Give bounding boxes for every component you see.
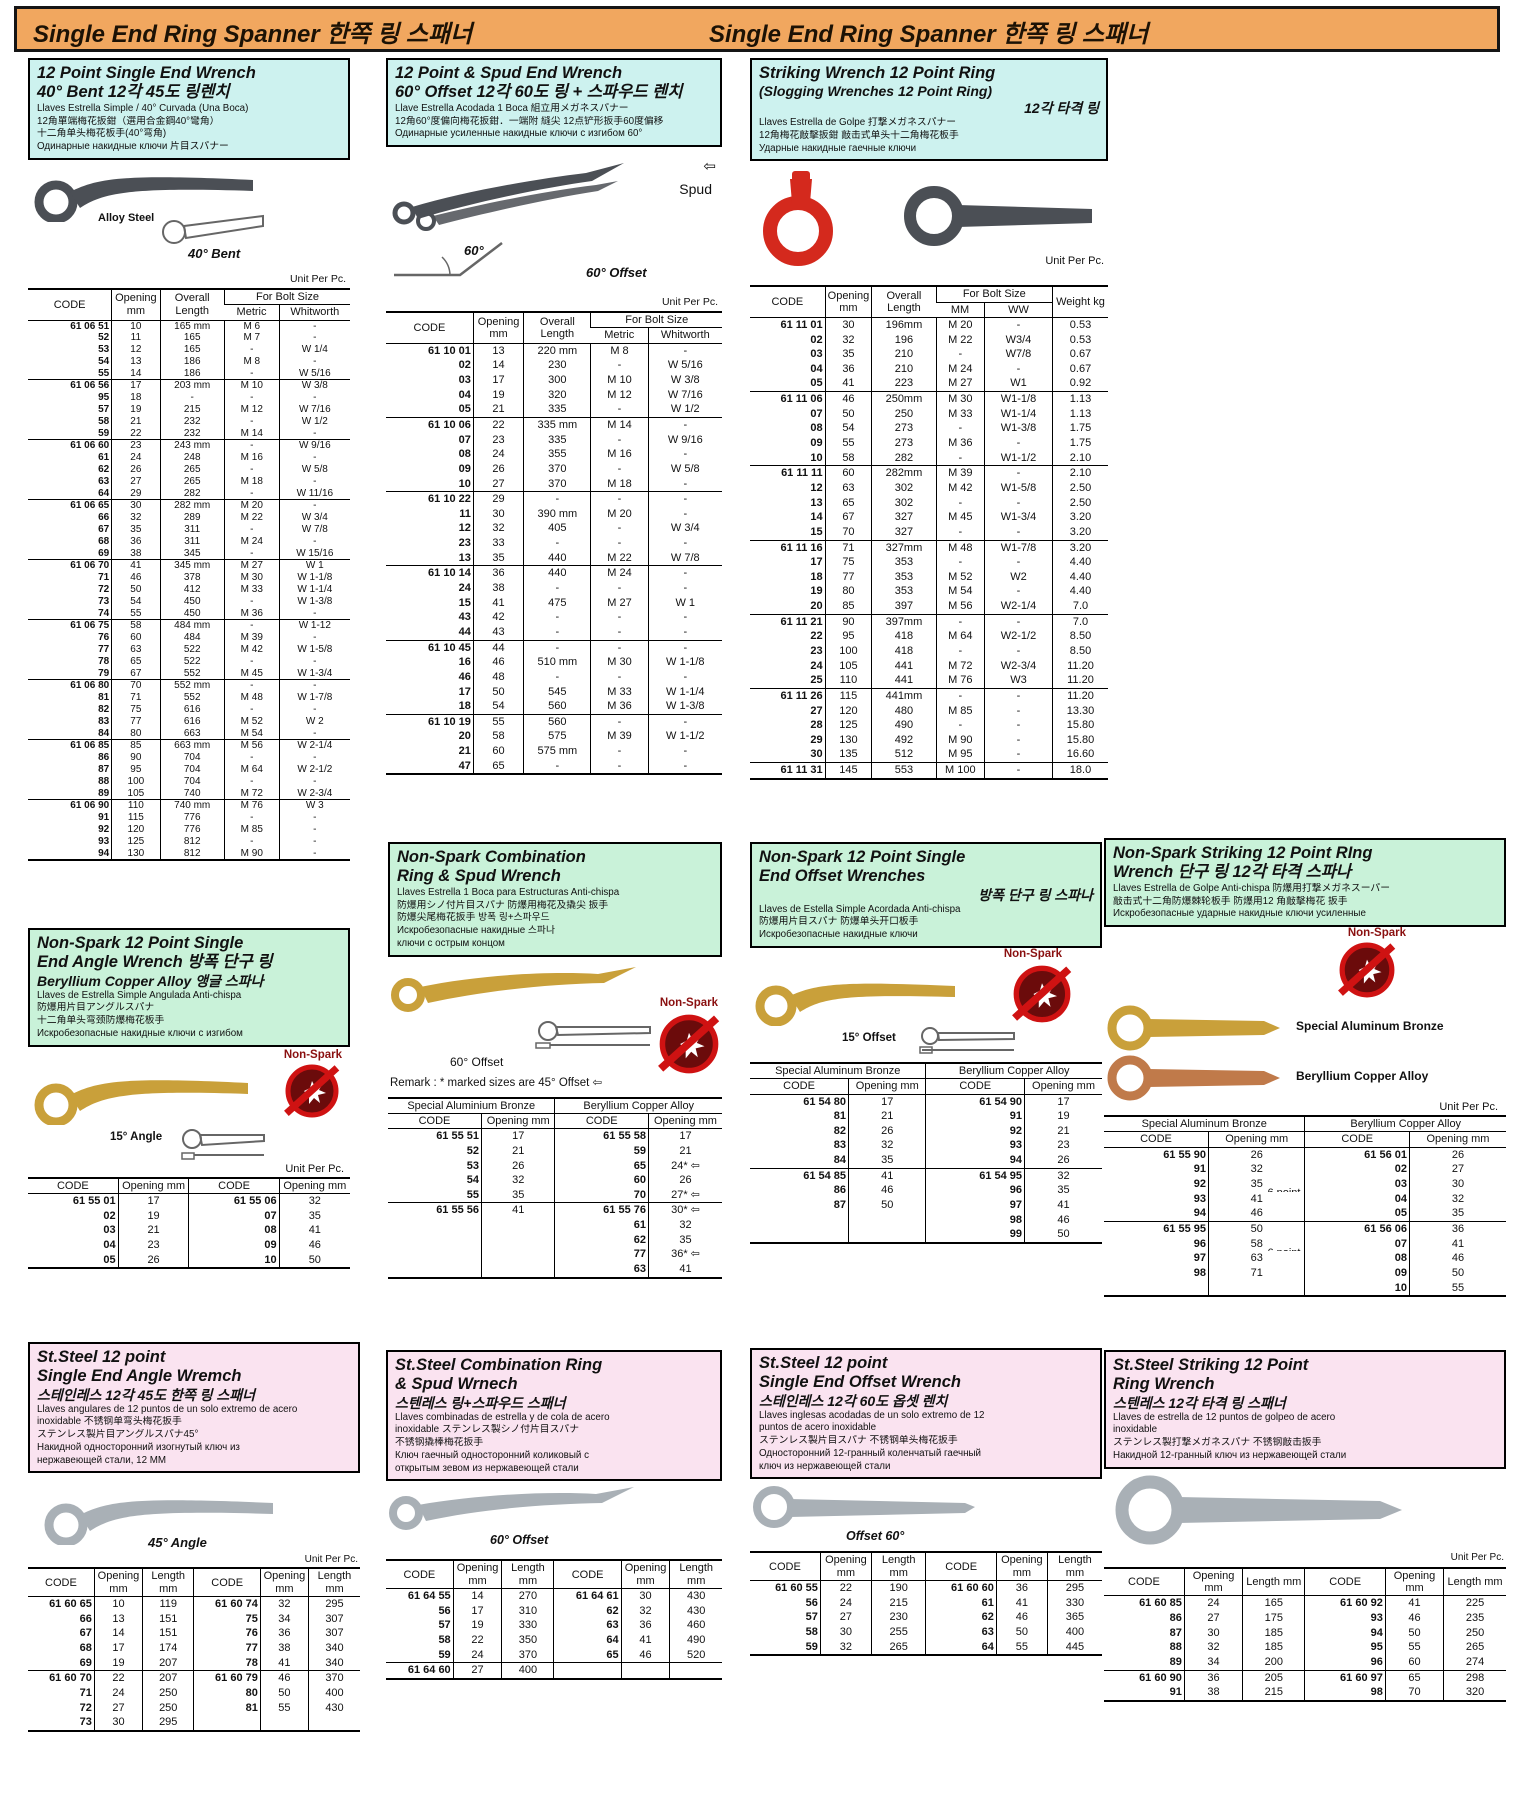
table-row: 30135512M 95-16.60 (750, 747, 1108, 762)
table-cell: 2.50 (1052, 496, 1108, 511)
table-row: 23100418--8.50 (750, 644, 1108, 659)
table-cell: 16.60 (1052, 747, 1108, 762)
table-cell: 61 55 56 (388, 1203, 482, 1218)
steel-spud-wrench-image (386, 1485, 636, 1535)
table-cell: 17 (386, 685, 473, 700)
table-cell: 61 60 79 (194, 1671, 260, 1686)
table-cell: W1 (984, 376, 1052, 391)
table-cell: 23 (473, 433, 523, 448)
table-cell: - (936, 347, 984, 362)
table-cell: 41 (621, 1633, 670, 1648)
table-cell: 32 (820, 1640, 871, 1656)
table-row: 92120776M 85- (28, 824, 350, 836)
bronze-striking-wrench-image (1104, 1005, 1284, 1051)
table-cell: 13 (750, 496, 825, 511)
wrench-outline-icon (918, 1026, 1018, 1058)
table-cell: 265 (871, 1640, 926, 1656)
section-descriptions: Llaves Estrella 1 Boca para Estructuras … (397, 887, 713, 951)
table-cell (670, 1663, 722, 1679)
table-cell: W3 (984, 673, 1052, 688)
table-cell: 92 (28, 824, 112, 836)
table-row: 0824355M 16- (386, 447, 722, 462)
section-title: St.Steel Striking 12 Point (1113, 1356, 1497, 1375)
table-row: 89342009660274 (1104, 1655, 1506, 1670)
table-row: 61 11 31145553M 100-18.0 (750, 763, 1108, 779)
table-cell: 145 (825, 763, 872, 779)
table-cell: 335 mm (524, 417, 591, 432)
table-row: 88321859555265 (1104, 1640, 1506, 1655)
table-cell: W 2-3/4 (279, 788, 350, 800)
section-descriptions: Llaves de Estella Simple Acordada Anti-c… (759, 904, 1093, 942)
table-cell: 55 (1385, 1640, 1443, 1655)
table-header-cell: Opening mm (825, 286, 872, 317)
table-cell: 36 (1184, 1670, 1242, 1685)
table-cell (194, 1715, 260, 1731)
table-cell: 100 (112, 776, 160, 788)
table-cell: 55 (28, 368, 112, 380)
table-header-cell: Special Aluminum Bronze (750, 1063, 926, 1079)
section-title-3: Beryllium Copper Alloy 앵글 스파나 (37, 973, 341, 990)
table-row: 6132 (388, 1218, 722, 1233)
table-cell: W 9/16 (648, 433, 722, 448)
table-cell: 32 (1184, 1640, 1242, 1655)
table-cell: 08 (386, 447, 473, 462)
table-cell: 232 (160, 428, 224, 440)
table-cell: 400 (308, 1686, 360, 1701)
table-cell: 345 (160, 548, 224, 560)
non-spark-label: Non-Spark (1348, 927, 1406, 939)
table-cell: 70 (112, 680, 160, 692)
table-cell: 61 11 31 (750, 763, 825, 779)
table-cell: W 3/4 (279, 512, 350, 524)
table-cell: 61 11 26 (750, 688, 825, 703)
section-descriptions: Llave Estrella Acodada 1 Boca 組立用メガネスパナー… (395, 103, 713, 141)
non-spark-logo-icon (284, 1063, 340, 1119)
table-cell: 43 (473, 625, 523, 640)
table-cell: 05 (386, 402, 473, 417)
table-cell: 34 (260, 1612, 308, 1627)
spud-wrench-image (386, 161, 636, 231)
table-header-cell: For Bolt Size (591, 312, 722, 328)
non-spark-label: Non-Spark (284, 1049, 342, 1061)
table-header-cell: Beryllium Copper Alloy (1305, 1116, 1506, 1132)
table-cell: 265 (1444, 1640, 1506, 1655)
table-cell: 19 (473, 388, 523, 403)
table-cell: 165 (1243, 1596, 1305, 1611)
table-cell: 46 (996, 1610, 1047, 1625)
section-header-box: 12 Point Single End Wrench 40° Bent 12각 … (28, 58, 350, 160)
table-row: 91115776-- (28, 812, 350, 824)
table-row: 97630846 (1104, 1251, 1506, 1266)
table-cell: 26 (849, 1124, 926, 1139)
non-spark-logo-icon (1012, 964, 1072, 1024)
table-row: 5821232-W 1/2 (28, 416, 350, 428)
table-cell: M 33 (224, 584, 279, 596)
table-row: 8795704M 64W 2-1/2 (28, 764, 350, 776)
table-cell: 10 (1305, 1281, 1410, 1297)
table-cell: 35 (1025, 1183, 1102, 1198)
section-title: Non-Spark Combination (397, 848, 713, 867)
table-cell: - (936, 451, 984, 466)
table-cell: 52 (388, 1144, 482, 1159)
table-cell: 80 (194, 1686, 260, 1701)
table-cell: - (224, 416, 279, 428)
table-row: 7330295 (28, 1715, 360, 1731)
table-cell: 18.0 (1052, 763, 1108, 779)
table-header-cell: CODE (386, 1560, 453, 1588)
table-cell: M 27 (936, 376, 984, 391)
table-cell: - (279, 320, 350, 332)
table-cell: 41 (482, 1203, 555, 1218)
table-cell: M 48 (224, 692, 279, 704)
table-cell: 26 (1025, 1153, 1102, 1168)
table-cell: - (648, 714, 722, 729)
table-cell: 0.53 (1052, 317, 1108, 332)
table-cell: 93 (1104, 1192, 1209, 1207)
table-row: 03210841 (28, 1223, 350, 1238)
table-cell: - (224, 620, 279, 632)
table-cell: 46 (386, 670, 473, 685)
table-cell: 663 mm (160, 740, 224, 752)
table-row: 0232196M 22W3/40.53 (750, 333, 1108, 348)
table-cell: 88 (28, 776, 112, 788)
table-cell: W 1-5/8 (279, 644, 350, 656)
table-cell: M 30 (936, 392, 984, 407)
table-cell: M 90 (224, 848, 279, 861)
table-cell: M 85 (224, 824, 279, 836)
table-row: 91382159870320 (1104, 1685, 1506, 1701)
table-row: 55357027* ⇦ (388, 1188, 722, 1203)
table-cell: W 3/8 (648, 373, 722, 388)
table-cell: W 1-7/8 (279, 692, 350, 704)
table-cell: 35 (473, 551, 523, 566)
table-cell: - (224, 776, 279, 788)
non-spark-logo-icon (1338, 941, 1396, 999)
section-ststeel-offset-wrench: St.Steel 12 point Single End Offset Wren… (750, 1348, 1102, 1656)
table-cell: 32 (649, 1218, 723, 1233)
table-cell: M 14 (224, 428, 279, 440)
table-cell: - (984, 436, 1052, 451)
non-spark-label: Non-Spark (660, 997, 718, 1009)
table-cell: 30 (820, 1625, 871, 1640)
table-row: 54326026 (388, 1173, 722, 1188)
table-cell: 41 (260, 1656, 308, 1671)
table-cell: 61 11 06 (750, 392, 825, 407)
table-cell: 29 (473, 492, 523, 507)
table-cell: 95 (28, 392, 112, 404)
table-header-cell: Opening mm (820, 1552, 871, 1580)
table-cell: - (279, 656, 350, 668)
table-cell: M 33 (936, 407, 984, 422)
section-title: St.Steel Combination Ring (395, 1356, 713, 1375)
table-cell: M 72 (936, 659, 984, 674)
table-header-cell: For Bolt Size (936, 286, 1052, 302)
table-cell: 46 (621, 1648, 670, 1663)
table-cell: 185 (1243, 1626, 1305, 1641)
table-cell: M 10 (591, 373, 648, 388)
table-cell: 250 (1444, 1626, 1506, 1641)
table-cell: 70 (1385, 1685, 1443, 1701)
section-title-alt: (Slogging Wrenches 12 Point Ring) (759, 83, 1099, 100)
table-cell: 215 (160, 404, 224, 416)
table-cell: - (279, 848, 350, 861)
product-image-area: Non-Spark 15° Offset (750, 948, 1102, 1060)
section-striking-wrench: Striking Wrench 12 Point Ring (Slogging … (750, 58, 1108, 780)
section-descriptions: Llaves de estrella de 12 puntos de golpe… (1113, 1412, 1497, 1463)
table-header-cell: Opening mm (473, 312, 523, 343)
table-cell: 32 (1410, 1192, 1507, 1207)
table-row: 9846 (750, 1213, 1102, 1228)
table-cell: M 24 (936, 362, 984, 377)
table-cell: 4.40 (1052, 584, 1108, 599)
table-cell: 61 64 55 (386, 1589, 453, 1604)
table-row: 61 55 011761 55 0632 (28, 1193, 350, 1208)
table-header-cell: MM (936, 302, 984, 317)
table-row: 59322656455445 (750, 1640, 1102, 1656)
table-header-cell: Opening mm (849, 1079, 926, 1094)
table-cell: 61 60 92 (1305, 1596, 1385, 1611)
table-cell (482, 1262, 555, 1278)
table-cell: - (984, 733, 1052, 748)
table-row: 0750250M 33W1-1/41.13 (750, 407, 1108, 422)
nonspark-offset-wrench-table: Special Aluminum BronzeBeryllium Copper … (750, 1062, 1102, 1244)
table-cell: M 18 (224, 476, 279, 488)
table-cell: 32 (849, 1138, 926, 1153)
section-descriptions: Llaves Estrella Simple / 40° Curvada (Un… (37, 103, 341, 154)
table-cell: 3.20 (1052, 510, 1108, 525)
table-header-cell: Beryllium Copper Alloy (926, 1063, 1102, 1079)
table-cell: 17 (750, 555, 825, 570)
table-cell: - (984, 614, 1052, 629)
table-cell: M 7 (224, 332, 279, 344)
table-cell: 61 06 70 (28, 560, 112, 572)
table-header-row: CODEOpening mmCODEOpening mm (1104, 1132, 1506, 1147)
table-header-cell: Length mm (871, 1552, 926, 1580)
table-cell: 10 (386, 477, 473, 492)
table-cell: - (279, 536, 350, 548)
table-cell: - (648, 581, 722, 596)
table-cell: M 22 (936, 333, 984, 348)
table-cell: 84 (28, 728, 112, 740)
table-cell: W 5/8 (279, 464, 350, 476)
unit-per-pc-label: Unit Per Pc. (1045, 255, 1104, 267)
table-header-row: CODEOpening mmCODEOpening mm (750, 1079, 1102, 1094)
table-cell: M 27 (224, 560, 279, 572)
table-cell: - (224, 836, 279, 848)
table-cell: 19 (750, 584, 825, 599)
table-cell: 82 (750, 1124, 849, 1139)
table-cell: - (224, 752, 279, 764)
table-cell: - (936, 496, 984, 511)
table-cell: 65 (473, 759, 523, 775)
table-row: 7736* ⇦ (388, 1247, 722, 1262)
angle-45-label: 45° Angle (148, 1535, 207, 1550)
table-cell: 44 (386, 625, 473, 640)
table-cell: 61 60 90 (1104, 1670, 1184, 1685)
table-cell: 08 (1305, 1251, 1410, 1266)
table-cell: 58 (386, 1633, 453, 1648)
table-cell: 91 (926, 1109, 1025, 1124)
alloy-steel-label: Alloy Steel (98, 212, 154, 224)
table-cell (308, 1715, 360, 1731)
table-cell: 61 06 80 (28, 680, 112, 692)
table-cell: M 8 (224, 356, 279, 368)
table-row: 04230946 (28, 1238, 350, 1253)
table-header-row: CODEOpening mmLength mmCODEOpening mmLen… (750, 1552, 1102, 1580)
table-cell: 61 10 45 (386, 640, 473, 655)
table-cell: - (524, 536, 591, 551)
table-row: 61 60 852416561 60 9241225 (1104, 1596, 1506, 1611)
table-cell: 33 (473, 536, 523, 551)
table-cell: - (648, 744, 722, 759)
table-cell: 26 (112, 464, 160, 476)
table-row: 1750545M 33W 1-1/4 (386, 685, 722, 700)
section-title-2: & Spud Wrnech (395, 1375, 713, 1394)
table-cell: W 5/16 (279, 368, 350, 380)
table-row: 5413186M 8- (28, 356, 350, 368)
table-cell: - (936, 688, 984, 703)
table-row: 1646510 mmM 30W 1-1/8 (386, 655, 722, 670)
table-header-row: CODEOpening mmOverall LengthFor Bolt Siz… (750, 286, 1108, 302)
table-header-cell: CODE (28, 289, 112, 320)
table-cell: 38 (112, 548, 160, 560)
table-row: 87301859450250 (1104, 1626, 1506, 1641)
table-cell (388, 1262, 482, 1278)
table-cell: 70 (555, 1188, 649, 1203)
table-cell: 46 (1410, 1251, 1507, 1266)
table-cell: 740 (160, 788, 224, 800)
table-cell: 46 (849, 1183, 926, 1198)
table-cell: 27 (1184, 1611, 1242, 1626)
section-title-2: End Offset Wrenches (759, 867, 1093, 886)
table-cell: - (648, 566, 722, 581)
table-row: 58223506441490 (386, 1633, 722, 1648)
table-cell: 90 (112, 752, 160, 764)
table-header-cell: Opening mm (996, 1552, 1047, 1580)
table-cell: 17 (1025, 1094, 1102, 1109)
table-cell: 35 (112, 524, 160, 536)
table-cell: - (524, 640, 591, 655)
table-cell: 22 (750, 629, 825, 644)
table-cell: 46 (825, 392, 872, 407)
table-header-cell: CODE (1305, 1132, 1410, 1147)
table-row: 1775353--4.40 (750, 555, 1108, 570)
table-cell: 295 (308, 1597, 360, 1612)
table-header-cell: Opening mm (621, 1560, 670, 1588)
table-row: 86469635 (750, 1183, 1102, 1198)
table-cell: 243 mm (160, 440, 224, 452)
table-row: 9518--- (28, 392, 350, 404)
table-cell: 61 06 56 (28, 380, 112, 392)
table-cell: 54 (28, 356, 112, 368)
table-cell: 12 (112, 344, 160, 356)
table-cell: 54 (388, 1173, 482, 1188)
unit-per-pc-label: Unit Per Pc. (386, 295, 722, 309)
table-row: 61 11 0130196mmM 20-0.53 (750, 317, 1108, 332)
table-cell: M 48 (936, 540, 984, 555)
table-cell: 60 (825, 466, 872, 481)
table-cell: 46 (1025, 1213, 1102, 1228)
product-image-area: Unit Per Pc. (1104, 1469, 1506, 1565)
table-row: 93410432 (1104, 1192, 1506, 1207)
table-cell: 46 (279, 1238, 350, 1253)
table-row: 7354450-W 1-3/8 (28, 596, 350, 608)
section-nonspark-ring-spud: Non-Spark Combination Ring & Spud Wrench… (388, 842, 722, 1279)
table-cell: 85 (112, 740, 160, 752)
table-cell: 71 (28, 572, 112, 584)
table-cell: 3.20 (1052, 525, 1108, 540)
section-title: St.Steel 12 point (37, 1348, 351, 1367)
table-row: 61 55 511761 55 5817 (388, 1129, 722, 1144)
table-cell: 46 (260, 1671, 308, 1686)
table-cell: W 1-12 (279, 620, 350, 632)
product-image-area: Non-Spark 15° Angle Unit Per Pc. (28, 1047, 350, 1175)
table-cell: 94 (926, 1153, 1025, 1168)
table-header-cell: Length mm (308, 1568, 360, 1596)
table-cell: 356 point (1209, 1177, 1305, 1192)
table-cell: 2.10 (1052, 466, 1108, 481)
table-cell: 36 (825, 362, 872, 377)
non-spark-label: Non-Spark (1004, 948, 1062, 960)
wrench-outline-icon (158, 208, 268, 248)
section-subtitle: 60° Offset 12각 60도 링 + 스파우드 렌치 (395, 83, 713, 102)
table-cell: 61 06 90 (28, 800, 112, 812)
table-cell: W 1-1/8 (648, 655, 722, 670)
table-cell: 165 (160, 332, 224, 344)
table-cell: 75 (825, 555, 872, 570)
table-header-cell: Opening mm (94, 1568, 142, 1596)
gold-offset-wrench-image (750, 966, 960, 1026)
table-cell: 335 (524, 402, 591, 417)
table-cell: 54 (473, 699, 523, 714)
table-cell: - (591, 714, 648, 729)
table-cell: 91 (1104, 1162, 1209, 1177)
table-cell: 30 (825, 317, 872, 332)
table-row: 91320227 (1104, 1162, 1506, 1177)
table-cell: 62 (554, 1604, 621, 1619)
table-header-cell: Special Aluminium Bronze (388, 1098, 555, 1114)
table-cell: 186 (160, 356, 224, 368)
table-cell: 61 60 85 (1104, 1596, 1184, 1611)
table-row: 0854273-W1-3/81.75 (750, 421, 1108, 436)
table-row: 6429282-W 11/16 (28, 488, 350, 500)
table-cell: 19 (453, 1618, 502, 1633)
table-cell: 55 (260, 1701, 308, 1716)
table-cell: 11.20 (1052, 659, 1108, 674)
table-cell: 370 (502, 1648, 554, 1663)
table-cell: 265 (160, 476, 224, 488)
table-cell: 230 (524, 358, 591, 373)
table-cell (849, 1213, 926, 1228)
table-cell: 46 (112, 572, 160, 584)
table-header-cell: CODE (926, 1079, 1025, 1094)
table-cell: 43 (386, 610, 473, 625)
table-cell: 63 (1209, 1251, 1305, 1266)
table-row: 24105441M 72W2-3/411.20 (750, 659, 1108, 674)
table-cell: 400 (1047, 1625, 1102, 1640)
table-cell: 57 (386, 1618, 453, 1633)
table-cell: 484 (160, 632, 224, 644)
table-cell: 418 (872, 644, 936, 659)
table-header-row: Special Aluminum BronzeBeryllium Copper … (1104, 1116, 1506, 1132)
table-cell (750, 1213, 849, 1228)
table-header-cell: Weight kg (1052, 286, 1108, 317)
table-row: 4342--- (386, 610, 722, 625)
table-row: 69192077841340 (28, 1656, 360, 1671)
table-header-cell: CODE (28, 1178, 118, 1194)
table-row: 0335210-W7/80.67 (750, 347, 1108, 362)
table-cell: 510 mm (524, 655, 591, 670)
